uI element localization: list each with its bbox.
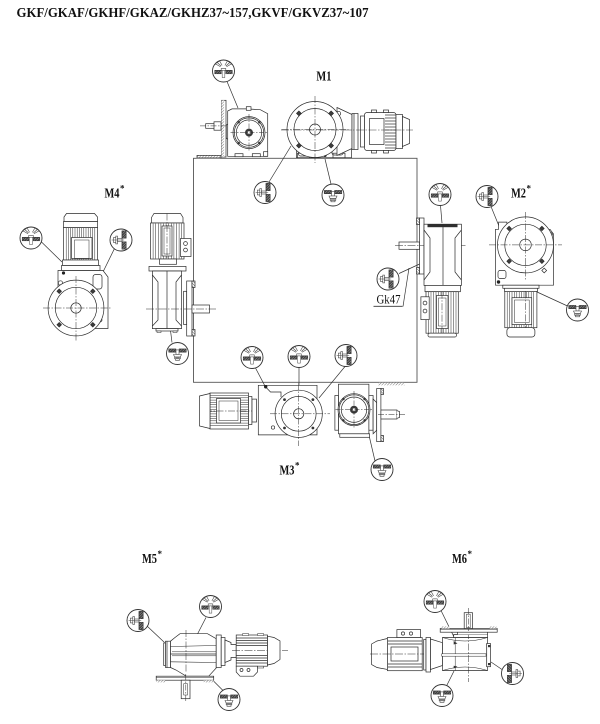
svg-text:M1: M1 bbox=[316, 68, 331, 83]
svg-text:M6: M6 bbox=[452, 551, 467, 566]
svg-text:*: * bbox=[295, 461, 300, 471]
svg-text:*: * bbox=[527, 184, 532, 194]
svg-text:*: * bbox=[120, 184, 125, 194]
svg-text:M4: M4 bbox=[105, 186, 120, 201]
svg-text:M5: M5 bbox=[142, 551, 157, 566]
svg-text:Gk47: Gk47 bbox=[377, 292, 401, 307]
svg-text:*: * bbox=[468, 549, 473, 559]
svg-text:M3: M3 bbox=[280, 463, 295, 478]
svg-text:M2: M2 bbox=[511, 186, 526, 201]
svg-text:*: * bbox=[158, 549, 163, 559]
svg-text:GKF/GKAF/GKHF/GKAZ/GKHZ37~157,: GKF/GKAF/GKHF/GKAZ/GKHZ37~157,GKVF/GKVZ3… bbox=[17, 5, 369, 20]
